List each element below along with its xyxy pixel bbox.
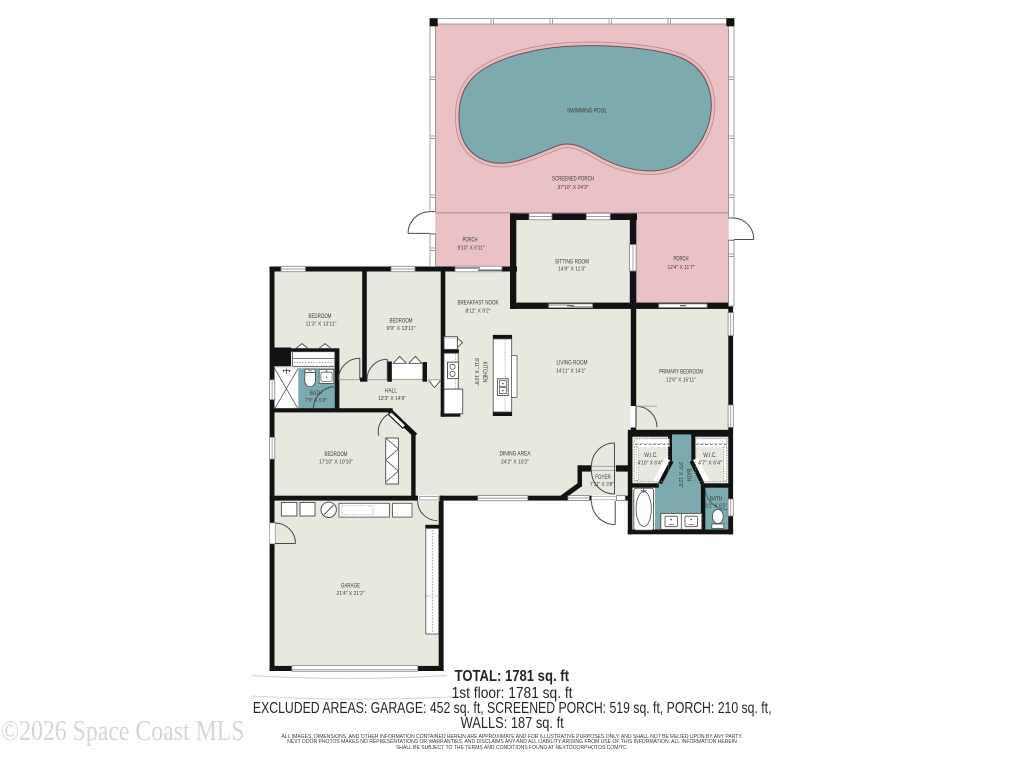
svg-text:KITCHEN: KITCHEN xyxy=(481,362,488,383)
svg-text:14'11" X 14'1": 14'11" X 14'1" xyxy=(556,368,586,374)
svg-text:BEDROOM: BEDROOM xyxy=(390,317,413,324)
svg-text:BEDROOM: BEDROOM xyxy=(325,451,348,458)
svg-text:13'3" X 14'9": 13'3" X 14'9" xyxy=(378,396,406,402)
svg-text:DINING AREA: DINING AREA xyxy=(500,450,532,457)
svg-text:SCREENED PORCH: SCREENED PORCH xyxy=(552,175,594,182)
svg-text:HALL: HALL xyxy=(385,387,397,394)
svg-text:W.I.C.: W.I.C. xyxy=(703,452,717,459)
svg-text:FOYER: FOYER xyxy=(595,474,611,481)
svg-text:BREAKFAST NOOK: BREAKFAST NOOK xyxy=(458,299,499,306)
svg-text:12'6" X 15'11": 12'6" X 15'11" xyxy=(666,377,696,383)
svg-text:21'4" X 21'2": 21'4" X 21'2" xyxy=(337,591,365,597)
svg-text:BATH: BATH xyxy=(685,469,692,482)
svg-text:PRIMARY BEDROOM: PRIMARY BEDROOM xyxy=(659,368,703,375)
svg-text:9'10" X 6'11": 9'10" X 6'11" xyxy=(458,245,485,251)
svg-text:4'10" X 6'4": 4'10" X 6'4" xyxy=(638,460,663,466)
svg-text:11'3" X 13'11": 11'3" X 13'11" xyxy=(306,321,337,327)
svg-text:8'11" X 9'2": 8'11" X 9'2" xyxy=(466,308,491,314)
svg-text:LIVING ROOM: LIVING ROOM xyxy=(557,359,588,366)
svg-text:12'4" X 11'7": 12'4" X 11'7" xyxy=(668,265,695,271)
svg-text:4'7" X 6'4": 4'7" X 6'4" xyxy=(698,460,722,466)
svg-text:14'9" X 11'3": 14'9" X 11'3" xyxy=(558,266,586,272)
svg-text:SWIMMING POOL: SWIMMING POOL xyxy=(567,107,607,114)
svg-text:3'1" X 6'5": 3'1" X 6'5" xyxy=(705,503,727,509)
svg-text:9'9" X 13'11": 9'9" X 13'11" xyxy=(387,326,416,332)
svg-text:9'0" X 12'6": 9'0" X 12'6" xyxy=(677,462,683,488)
svg-text:8'11" X 10'8": 8'11" X 10'8" xyxy=(473,358,479,386)
svg-text:24'2" X 10'2": 24'2" X 10'2" xyxy=(501,459,529,465)
svg-text:7'9" X 5'3": 7'9" X 5'3" xyxy=(305,398,327,404)
svg-text:W.I.C.: W.I.C. xyxy=(644,452,658,459)
svg-text:BATH: BATH xyxy=(310,390,323,397)
svg-text:BEDROOM: BEDROOM xyxy=(309,313,332,320)
svg-text:17'10" X 10'10": 17'10" X 10'10" xyxy=(319,459,353,465)
svg-text:PORCH: PORCH xyxy=(463,236,478,243)
svg-text:7'11" X 3'8": 7'11" X 3'8" xyxy=(590,482,614,488)
svg-text:37'10" X 24'3": 37'10" X 24'3" xyxy=(558,185,589,191)
svg-text:GARAGE: GARAGE xyxy=(341,582,360,589)
svg-text:BATH: BATH xyxy=(710,495,723,502)
svg-text:SITTING ROOM: SITTING ROOM xyxy=(555,258,589,265)
svg-text:PORCH: PORCH xyxy=(674,255,689,262)
